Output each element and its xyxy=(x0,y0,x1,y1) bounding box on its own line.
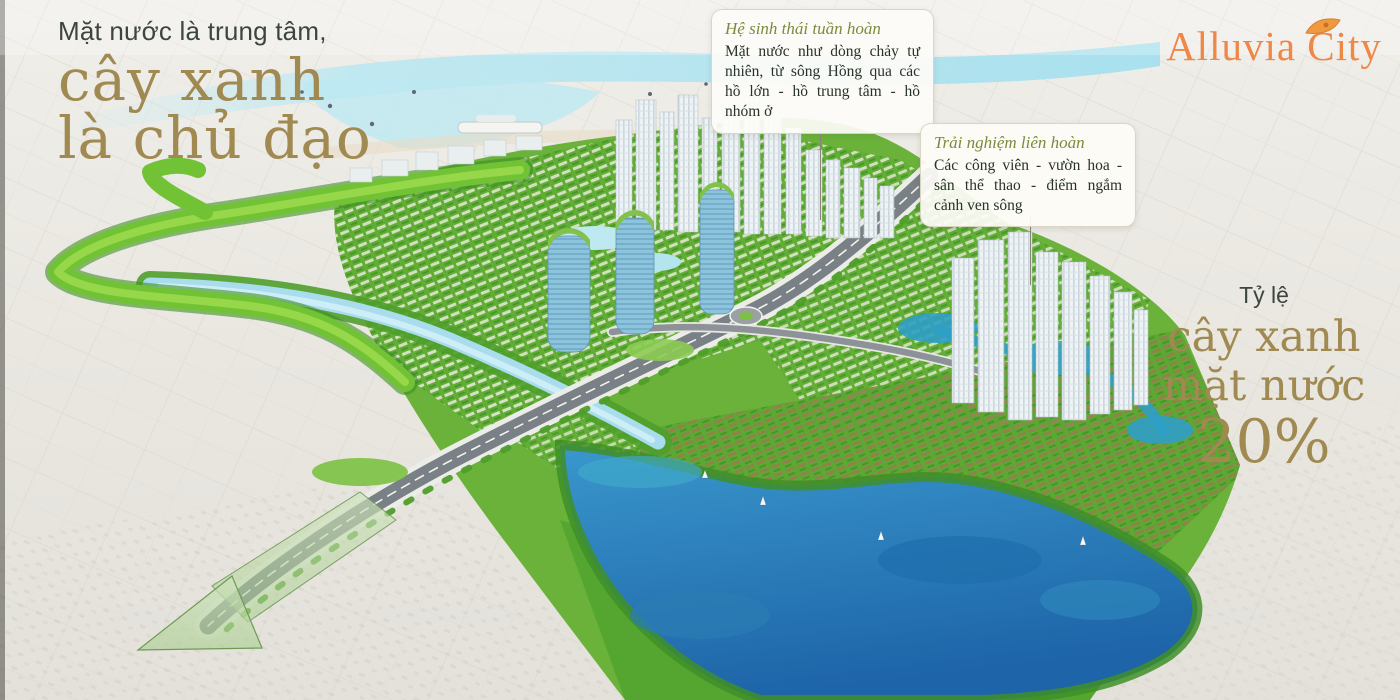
alluvia-city-masterplan-banner: Mặt nước là trung tâm, cây xanh là chủ đ… xyxy=(0,0,1400,700)
stat-line2: mặt nước xyxy=(1140,362,1388,411)
headline-line1: cây xanh xyxy=(58,51,372,109)
headline: Mặt nước là trung tâm, cây xanh là chủ đ… xyxy=(58,16,372,167)
brand-name: Alluvia City xyxy=(1158,22,1390,70)
headline-intro: Mặt nước là trung tâm, xyxy=(58,16,372,47)
leaf-icon xyxy=(1304,13,1344,39)
callout-ecosystem-title: Hệ sinh thái tuần hoàn xyxy=(725,19,920,39)
callout-ecosystem: Hệ sinh thái tuần hoàn Mặt nước như dòng… xyxy=(711,9,934,134)
stat-line1: cây xanh xyxy=(1140,313,1388,362)
callout-experience-title: Trải nghiệm liên hoàn xyxy=(934,133,1122,153)
callout-ecosystem-leader-line xyxy=(820,120,821,220)
stat-value: 20% xyxy=(1140,411,1388,474)
green-water-ratio-stat: Tỷ lệ cây xanh mặt nước 20% xyxy=(1140,282,1388,474)
callout-experience: Trải nghiệm liên hoàn Các công viên - vư… xyxy=(920,123,1136,227)
brand-logo: Alluvia City xyxy=(1158,22,1390,70)
stat-label: Tỷ lệ xyxy=(1140,282,1388,309)
image-edge-strip xyxy=(0,0,5,700)
callout-experience-body: Các công viên - vườn hoa - sân thể thao … xyxy=(934,156,1122,216)
callout-experience-leader-line xyxy=(1030,217,1031,285)
headline-line2: là chủ đạo xyxy=(58,109,372,167)
callout-ecosystem-body: Mặt nước như dòng chảy tự nhiên, từ sông… xyxy=(725,42,920,123)
